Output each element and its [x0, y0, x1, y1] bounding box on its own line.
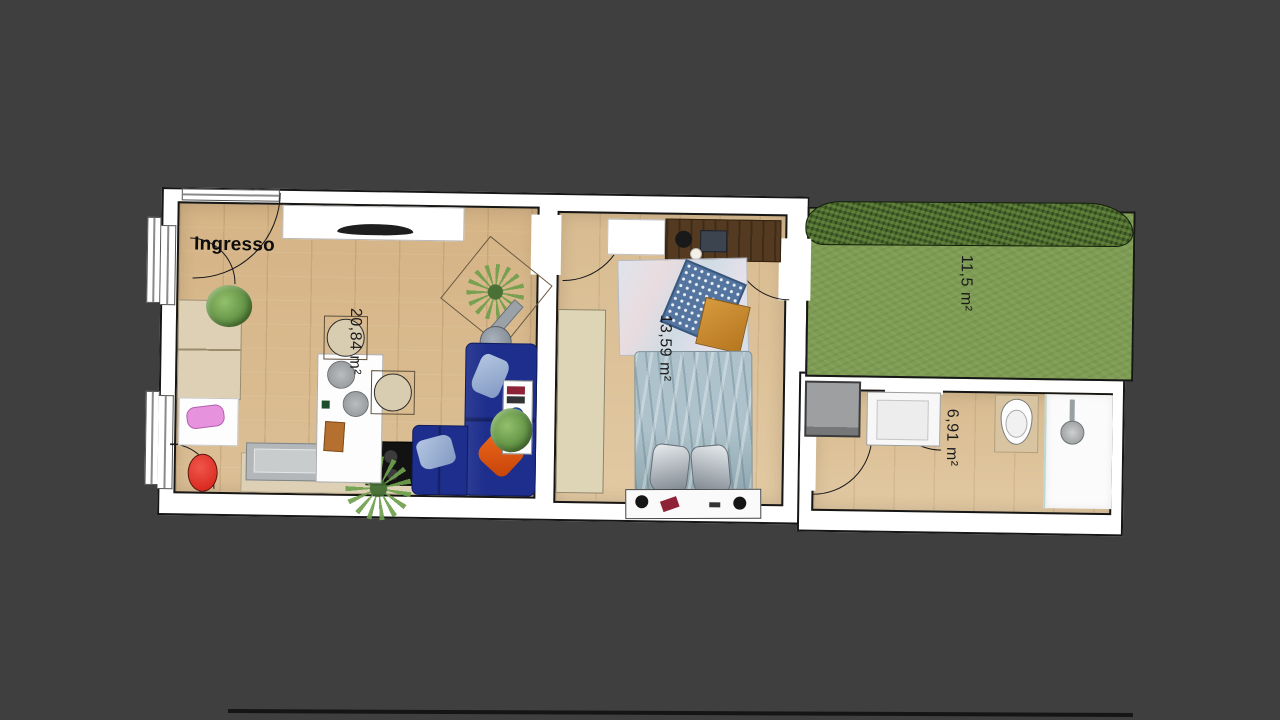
washing-machine: [804, 381, 861, 438]
apartment-plan: 11,5 m²: [153, 181, 1138, 547]
tv-sideboard: [282, 205, 464, 242]
kitchen-sink-basin: [254, 448, 322, 473]
door-gap-living-bedroom: [531, 215, 562, 275]
floor-plan-view: { "view": {"background_color": "#3f3f3f"…: [0, 0, 1280, 720]
ground-shadow-line: [228, 709, 1133, 717]
side-table-item-red: [507, 386, 525, 394]
shower-area: [1043, 394, 1113, 509]
wardrobe: [555, 309, 606, 494]
cutting-board: [323, 421, 345, 452]
entrance-label: Ingresso: [194, 234, 275, 257]
bed-pillow-left: [648, 443, 691, 495]
living-area-label: 20,84 m²: [345, 308, 364, 375]
bedroom-area-label: 13,59 m²: [655, 314, 674, 381]
bed-pillow-right: [690, 444, 732, 495]
island-item-green: [322, 400, 330, 408]
garden-area-label: 11,5 m²: [956, 255, 975, 312]
window-left-upper: [160, 225, 176, 305]
bathroom-sink-basin: [876, 400, 929, 441]
window-sill-upper: [146, 217, 161, 303]
bathroom-area-label: 6,91 m²: [942, 409, 961, 467]
hedge: [805, 201, 1133, 247]
headboard-item-dark: [709, 502, 720, 507]
desk-chair: [675, 231, 692, 248]
bedroom-shelf-white: [607, 219, 666, 256]
side-table-item-dark: [507, 396, 525, 403]
laptop: [700, 230, 727, 252]
